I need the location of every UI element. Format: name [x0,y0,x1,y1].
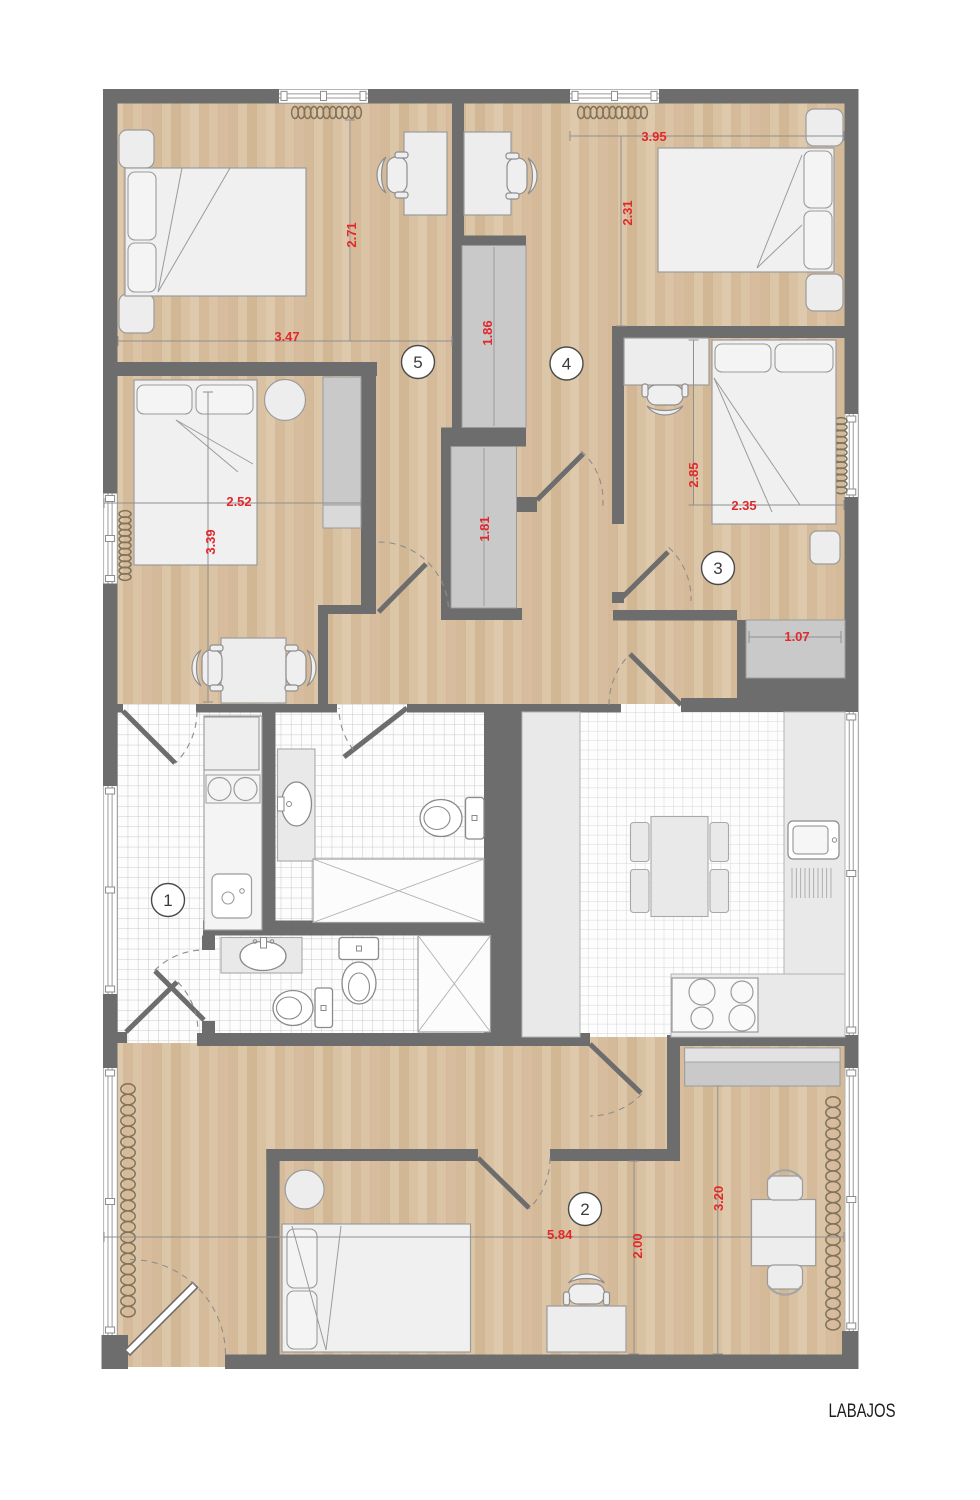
svg-text:4: 4 [562,355,571,374]
svg-text:5.84: 5.84 [547,1227,573,1242]
svg-text:3.39: 3.39 [203,529,218,554]
svg-text:3.47: 3.47 [274,329,299,344]
svg-text:2.00: 2.00 [630,1233,645,1258]
svg-text:2.85: 2.85 [686,462,701,487]
svg-text:LABAJOS: LABAJOS [829,1400,896,1422]
svg-text:2: 2 [580,1200,589,1219]
svg-text:3.20: 3.20 [711,1186,726,1211]
svg-text:3.95: 3.95 [641,129,666,144]
svg-text:2.71: 2.71 [344,222,359,247]
svg-text:2.35: 2.35 [731,498,756,513]
svg-text:3: 3 [713,559,722,578]
svg-text:2.31: 2.31 [620,200,635,225]
svg-text:1: 1 [163,891,172,910]
svg-text:2.52: 2.52 [226,494,251,509]
svg-text:1.86: 1.86 [480,320,495,345]
svg-text:5: 5 [413,353,422,372]
svg-text:1.81: 1.81 [477,516,492,541]
svg-text:1.07: 1.07 [784,629,809,644]
